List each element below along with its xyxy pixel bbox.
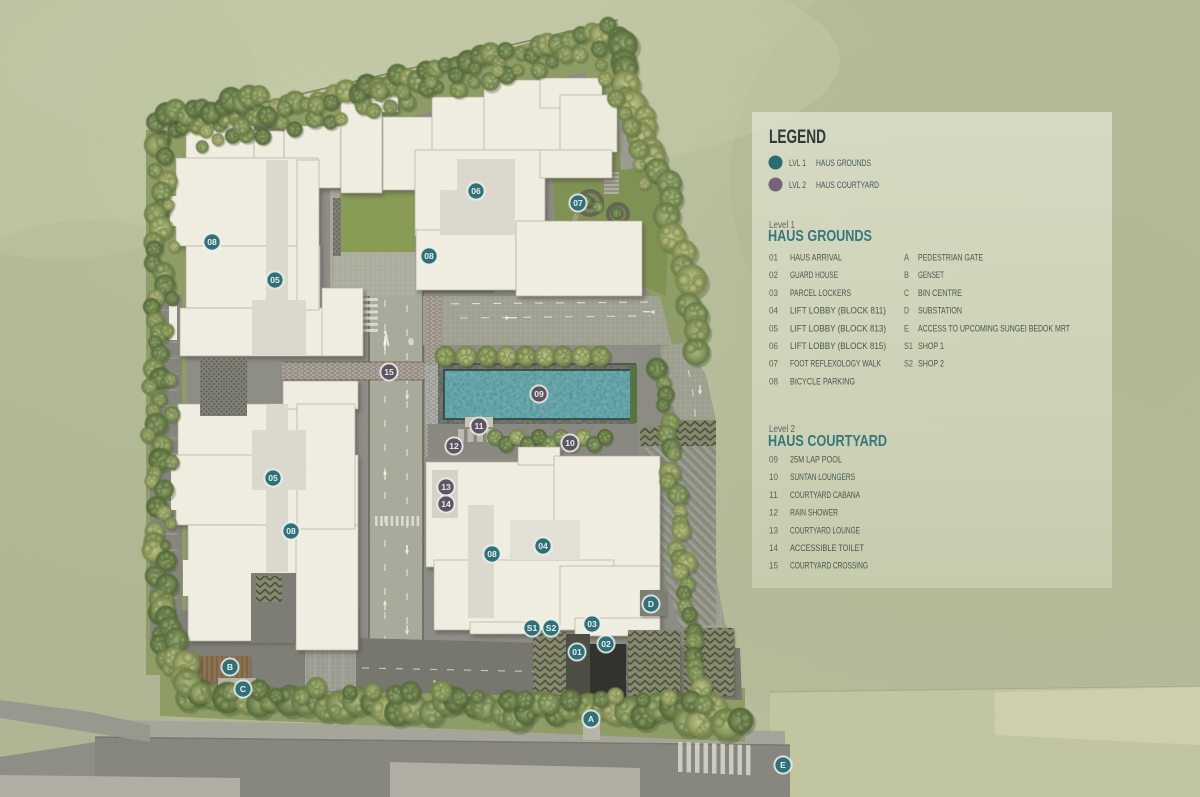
svg-text:LIFT LOBBY (BLOCK 811): LIFT LOBBY (BLOCK 811) — [790, 306, 886, 316]
svg-text:15: 15 — [384, 367, 394, 377]
svg-text:14: 14 — [769, 543, 778, 553]
svg-text:E: E — [904, 323, 909, 333]
svg-text:01: 01 — [769, 253, 778, 263]
svg-text:08: 08 — [207, 237, 217, 247]
svg-text:13: 13 — [441, 482, 451, 492]
svg-text:HAUS GROUNDS: HAUS GROUNDS — [816, 158, 871, 169]
svg-text:LIFT LOBBY (BLOCK 815): LIFT LOBBY (BLOCK 815) — [790, 341, 886, 351]
svg-text:S2: S2 — [904, 359, 913, 369]
svg-text:ACCESSIBLE TOILET: ACCESSIBLE TOILET — [790, 543, 864, 553]
svg-text:06: 06 — [769, 341, 778, 351]
svg-text:B: B — [227, 662, 233, 672]
svg-text:12: 12 — [769, 508, 778, 518]
svg-text:E: E — [780, 760, 786, 770]
svg-text:08: 08 — [487, 549, 497, 559]
svg-text:LEGEND: LEGEND — [769, 127, 826, 148]
svg-text:GENSET: GENSET — [918, 270, 944, 280]
svg-text:BIN CENTRE: BIN CENTRE — [918, 288, 962, 298]
svg-text:05: 05 — [270, 275, 280, 285]
svg-text:LVL 2: LVL 2 — [789, 180, 806, 191]
svg-text:10: 10 — [769, 472, 778, 482]
svg-text:C: C — [904, 288, 909, 298]
svg-text:03: 03 — [769, 288, 778, 298]
svg-text:15: 15 — [769, 561, 778, 571]
svg-text:D: D — [904, 306, 909, 316]
svg-text:09: 09 — [769, 455, 778, 465]
svg-text:PEDESTRIAN GATE: PEDESTRIAN GATE — [918, 253, 983, 263]
svg-text:HAUS ARRIVAL: HAUS ARRIVAL — [790, 253, 842, 263]
svg-text:06: 06 — [471, 186, 481, 196]
svg-text:COURTYARD LOUNGE: COURTYARD LOUNGE — [790, 525, 860, 535]
svg-text:HAUS COURTYARD: HAUS COURTYARD — [768, 433, 887, 450]
svg-text:08: 08 — [286, 526, 296, 536]
svg-text:11: 11 — [474, 421, 483, 431]
svg-text:GUARD HOUSE: GUARD HOUSE — [790, 270, 838, 280]
svg-text:HAUS COURTYARD: HAUS COURTYARD — [816, 180, 879, 191]
svg-text:07: 07 — [573, 198, 583, 208]
svg-text:COURTYARD CROSSING: COURTYARD CROSSING — [790, 561, 868, 571]
svg-text:LIFT LOBBY (BLOCK 813): LIFT LOBBY (BLOCK 813) — [790, 323, 886, 333]
svg-text:25M LAP POOL: 25M LAP POOL — [790, 455, 842, 465]
svg-text:S1: S1 — [904, 341, 913, 351]
svg-text:A: A — [588, 714, 594, 724]
svg-text:01: 01 — [572, 647, 582, 657]
svg-text:C: C — [240, 684, 246, 694]
svg-text:A: A — [904, 253, 910, 263]
svg-text:SHOP 1: SHOP 1 — [918, 341, 944, 351]
svg-text:11: 11 — [769, 490, 778, 500]
svg-text:S1: S1 — [527, 623, 538, 633]
svg-text:B: B — [904, 270, 909, 280]
svg-text:04: 04 — [538, 541, 548, 551]
svg-text:12: 12 — [449, 441, 459, 451]
svg-text:13: 13 — [769, 525, 778, 535]
svg-text:HAUS GROUNDS: HAUS GROUNDS — [768, 228, 872, 245]
svg-text:PARCEL LOCKERS: PARCEL LOCKERS — [790, 288, 851, 298]
svg-text:BICYCLE PARKING: BICYCLE PARKING — [790, 376, 855, 386]
svg-text:RAIN SHOWER: RAIN SHOWER — [790, 508, 838, 518]
svg-text:FOOT REFLEXOLOGY WALK: FOOT REFLEXOLOGY WALK — [790, 359, 882, 369]
svg-text:10: 10 — [565, 438, 575, 448]
svg-text:D: D — [648, 599, 654, 609]
svg-text:ACCESS TO UPCOMING SUNGEI BEDO: ACCESS TO UPCOMING SUNGEI BEDOK MRT — [918, 323, 1070, 333]
svg-text:02: 02 — [601, 639, 611, 649]
svg-text:S2: S2 — [546, 623, 557, 633]
svg-text:08: 08 — [424, 251, 434, 261]
svg-text:05: 05 — [268, 473, 278, 483]
svg-text:SUBSTATION: SUBSTATION — [918, 306, 962, 316]
svg-text:04: 04 — [769, 306, 778, 316]
svg-text:09: 09 — [534, 389, 544, 399]
svg-text:SUNTAN LOUNGERS: SUNTAN LOUNGERS — [790, 472, 855, 482]
svg-text:07: 07 — [769, 359, 778, 369]
svg-text:05: 05 — [769, 323, 778, 333]
svg-text:08: 08 — [769, 376, 778, 386]
svg-text:03: 03 — [587, 619, 597, 629]
svg-text:COURTYARD CABANA: COURTYARD CABANA — [790, 490, 861, 500]
svg-text:02: 02 — [769, 270, 778, 280]
svg-text:LVL 1: LVL 1 — [789, 158, 806, 169]
svg-text:14: 14 — [441, 499, 451, 509]
svg-text:SHOP 2: SHOP 2 — [918, 359, 944, 369]
